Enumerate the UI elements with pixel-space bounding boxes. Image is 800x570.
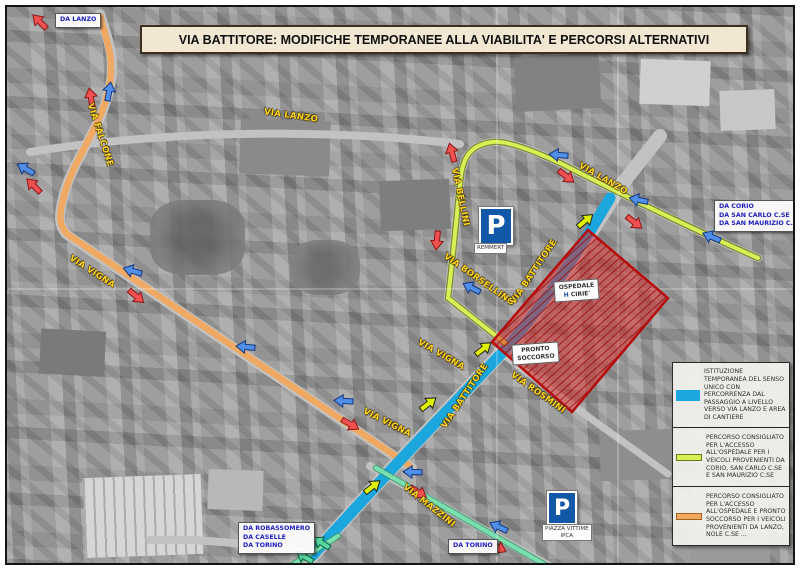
traffic-map-page: { "title": "VIA BATTITORE: MODIFICHE TEM… [0, 0, 800, 570]
origin-label-text: DA CORIO [719, 203, 754, 210]
origin-label-da-torino: DA TORINO [448, 539, 498, 554]
parking-icon-south: P [547, 491, 577, 525]
parking-caption-text: IPCA [561, 533, 574, 539]
origin-label-text: DA SAN CARLO C.SE [719, 212, 790, 219]
legend-swatch-blue [676, 390, 700, 401]
legend-item-lanzo-access: PERCORSO CONSIGLIATO PER L'ACCESSO ALL'O… [672, 487, 790, 546]
legend-item-text: PERCORSO CONSIGLIATO PER L'ACCESSO ALL'O… [706, 434, 786, 480]
legend-swatch-orange [676, 513, 702, 520]
arrow-red [23, 175, 45, 197]
origin-label-text: DA SAN MAURIZIO C.SE [719, 220, 795, 227]
legend-swatch-green [676, 454, 702, 461]
legend-item-one-way: ISTITUZIONE TEMPORANEA DEL SENSO UNICO C… [672, 362, 790, 428]
parking-caption-north: REMMERT [474, 243, 507, 254]
emergency-room-label: PRONTO SOCCORSO [511, 341, 560, 365]
hospital-label-text: CIRIE' [571, 290, 591, 298]
parking-p-glyph: P [486, 211, 505, 241]
origin-label-text: DA ROBASSOMERO [243, 525, 310, 532]
map-frame: VIA FALCONE VIA VIGNA VIA LANZO VIA BELL… [5, 5, 795, 565]
arrow-red [430, 230, 444, 250]
parking-icon-north: P [479, 207, 513, 245]
aerial-map: VIA FALCONE VIA VIGNA VIA LANZO VIA BELL… [5, 5, 795, 565]
emergency-room-text: SOCCORSO [517, 352, 555, 362]
legend-item-text: PERCORSO CONSIGLIATO PER L'ACCESSO ALL'O… [706, 493, 786, 539]
arrow-red [623, 212, 646, 233]
hospital-label: OSPEDALE H CIRIE' [553, 278, 600, 302]
arrow-red [29, 11, 51, 33]
origin-label-da-lanzo: DA LANZO [55, 13, 101, 28]
origin-label-da-corio: DA CORIO DA SAN CARLO C.SE DA SAN MAURIZ… [714, 200, 795, 232]
parking-caption-text: PIAZZA VITTIME [545, 526, 589, 532]
hospital-h-icon: H [563, 291, 569, 298]
legend: ISTITUZIONE TEMPORANEA DEL SENSO UNICO C… [672, 362, 790, 546]
arrow-blue [334, 394, 354, 407]
legend-item-hospital-access: PERCORSO CONSIGLIATO PER L'ACCESSO ALL'O… [672, 428, 790, 487]
origin-label-da-robassomero: DA ROBASSOMERO DA CASELLE DA TORINO [238, 522, 315, 554]
parking-caption-text: REMMERT [477, 245, 504, 251]
route-da-lanzo-orange [60, 16, 410, 466]
arrow-one-way [417, 393, 440, 414]
page-title: VIA BATTITORE: MODIFICHE TEMPORANEE ALLA… [140, 25, 748, 54]
origin-label-text: DA LANZO [60, 16, 96, 23]
origin-label-text: DA CASELLE [243, 534, 286, 541]
origin-label-text: DA TORINO [243, 542, 283, 549]
legend-item-text: ISTITUZIONE TEMPORANEA DEL SENSO UNICO C… [704, 368, 786, 421]
page-title-text: VIA BATTITORE: MODIFICHE TEMPORANEE ALLA… [179, 33, 710, 47]
parking-caption-south: PIAZZA VITTIME IPCA [542, 524, 592, 541]
parking-p-glyph: P [554, 496, 570, 521]
origin-label-text: DA TORINO [453, 542, 493, 549]
arrow-blue [14, 159, 37, 179]
